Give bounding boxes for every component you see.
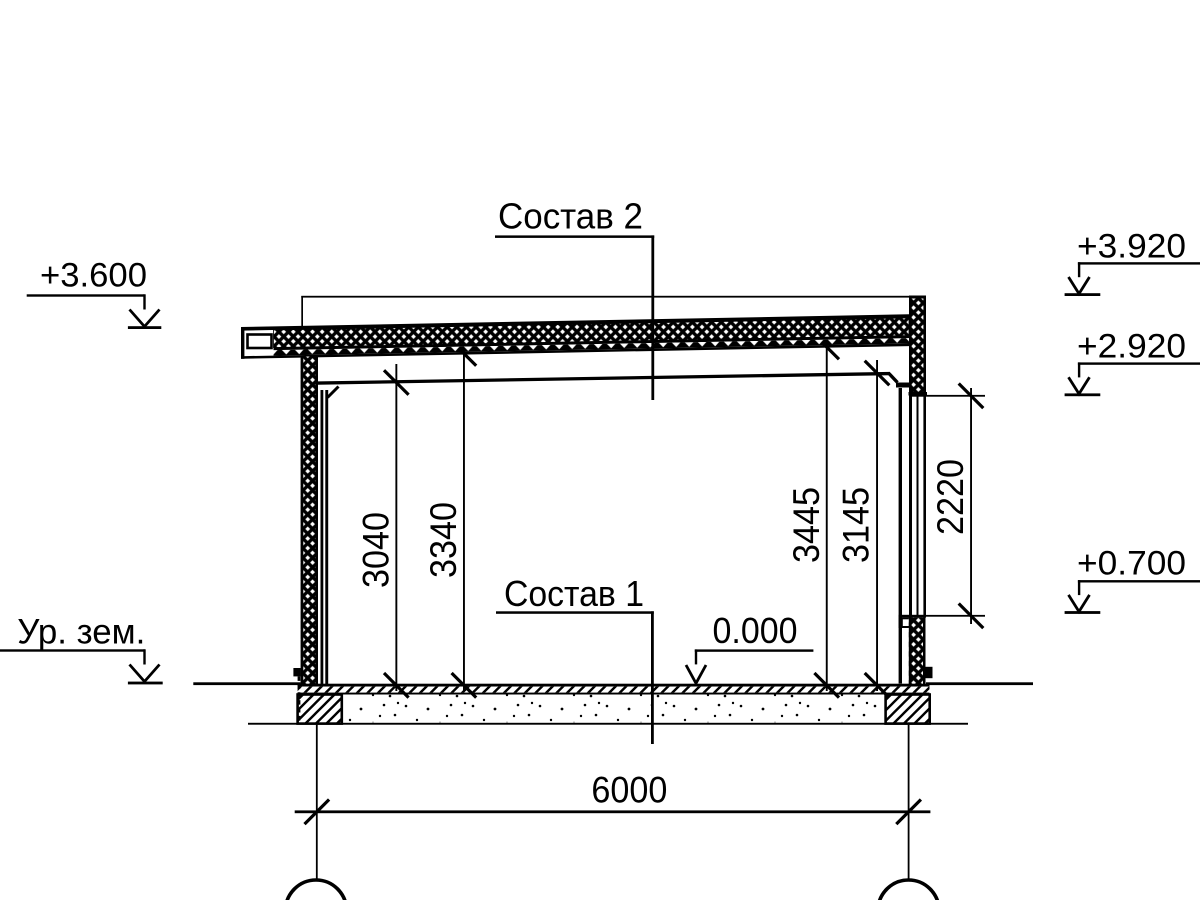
- svg-text:Состав 1: Состав 1: [504, 573, 644, 614]
- svg-text:+0.700: +0.700: [1077, 544, 1186, 582]
- svg-text:2220: 2220: [930, 459, 971, 535]
- svg-text:Состав 2: Состав 2: [498, 196, 643, 237]
- svg-text:3145: 3145: [836, 487, 877, 563]
- svg-text:3445: 3445: [786, 487, 827, 563]
- svg-text:3340: 3340: [423, 502, 464, 578]
- svg-text:+3.920: +3.920: [1077, 227, 1186, 265]
- svg-text:+3.600: +3.600: [40, 257, 147, 295]
- svg-text:+2.920: +2.920: [1077, 328, 1186, 366]
- svg-text:Ур. зем.: Ур. зем.: [17, 612, 145, 651]
- svg-text:3040: 3040: [356, 512, 397, 588]
- svg-text:6000: 6000: [591, 770, 667, 811]
- svg-text:0.000: 0.000: [713, 610, 798, 651]
